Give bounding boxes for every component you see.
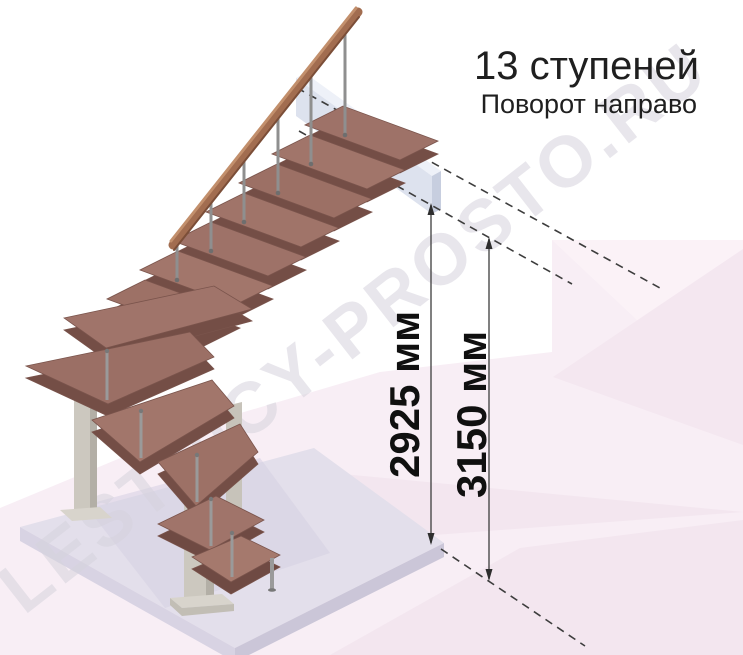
page-title: 13 ступеней xyxy=(474,44,699,88)
dimension-label-3150: 3150 мм xyxy=(448,331,495,498)
dimension-label-2925: 2925 мм xyxy=(381,311,428,478)
page-subtitle: Поворот направо xyxy=(481,89,697,119)
staircase-diagram: LESTNICY-PROSTO.RU xyxy=(0,0,743,655)
staircase-illustration: LESTNICY-PROSTO.RU xyxy=(0,0,743,655)
